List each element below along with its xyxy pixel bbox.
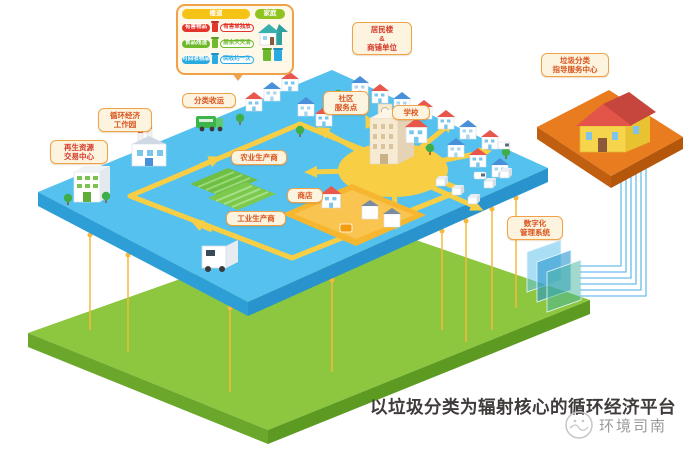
label-agriculture: 农业生产商	[231, 150, 287, 165]
legend-corridor-header: 楼道	[182, 9, 250, 19]
legend-rows: 有害物品 有害单独放 食品残渣 厨余天天清 可回收物品 回收约一次	[182, 21, 254, 66]
legend-row-recyclable: 可回收物品 回收约一次	[182, 53, 254, 66]
recyclable-tag: 回收约一次	[220, 56, 254, 64]
infographic-canvas: 楼道 家庭 有害物品 有害单独放 食品残渣 厨余天天清 可回收物品 回收约一次	[0, 0, 686, 452]
label-guidance: 垃圾分类 指导服务中心	[541, 53, 609, 77]
label-school: 学校	[392, 105, 430, 120]
legend-row-hazardous: 有害物品 有害单独放	[182, 21, 254, 34]
recyclable-bin-icon	[212, 55, 218, 64]
watermark-text: 环境司南	[599, 415, 667, 436]
label-trade-center: 再生资源 交易中心	[50, 140, 108, 164]
label-industry: 工业生产商	[226, 211, 286, 226]
watermark: 环境司南	[562, 408, 667, 442]
label-shop: 商店	[287, 188, 323, 203]
legend-home-column	[254, 21, 290, 66]
factory-building	[132, 126, 166, 166]
label-community: 社区 服务点	[323, 91, 369, 115]
label-residential: 居民楼 & 商铺单位	[352, 22, 412, 55]
kitchen-tag: 厨余天天清	[220, 40, 254, 48]
hazardous-bin-icon	[212, 23, 218, 32]
legend-row-kitchen: 食品残渣 厨余天天清	[182, 37, 254, 50]
home-kitchen-bin-icon	[263, 50, 271, 61]
label-collection: 分类收运	[182, 93, 236, 108]
label-eco-park: 循环经济 工作园	[98, 108, 152, 132]
house-icon	[254, 21, 290, 49]
legend-home-header: 家庭	[255, 9, 285, 19]
kitchen-bin-icon	[212, 39, 218, 48]
hazardous-label: 有害物品	[182, 24, 210, 32]
label-digital: 数字化 管理系统	[507, 216, 563, 240]
hazardous-tag: 有害单独放	[220, 24, 254, 32]
home-recyclable-bin-icon	[274, 50, 282, 61]
legend-box: 楼道 家庭 有害物品 有害单独放 食品残渣 厨余天天清 可回收物品 回收约一次	[176, 4, 294, 75]
kitchen-label: 食品残渣	[182, 40, 210, 48]
watermark-logo-icon	[562, 408, 596, 442]
recyclable-label: 可回收物品	[182, 56, 210, 64]
